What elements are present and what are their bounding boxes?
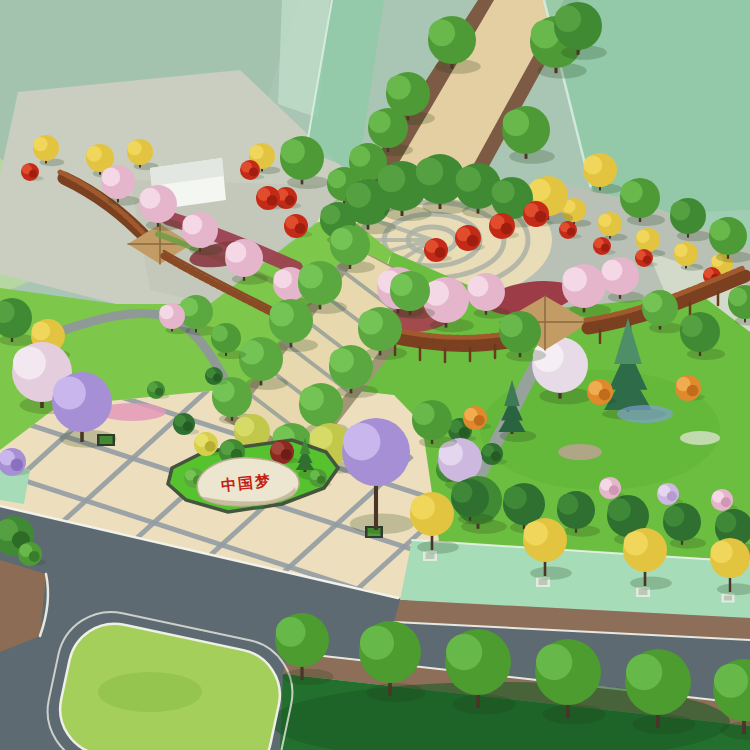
park-aerial-rendering: 中国梦 bbox=[0, 0, 750, 750]
park-rendering-canvas: 中国梦 bbox=[0, 0, 750, 750]
flower-patch-white bbox=[680, 431, 720, 445]
island-lawn-shade bbox=[98, 672, 202, 712]
flower-patch-pink bbox=[558, 444, 602, 460]
flower-patch-blue bbox=[617, 405, 673, 423]
